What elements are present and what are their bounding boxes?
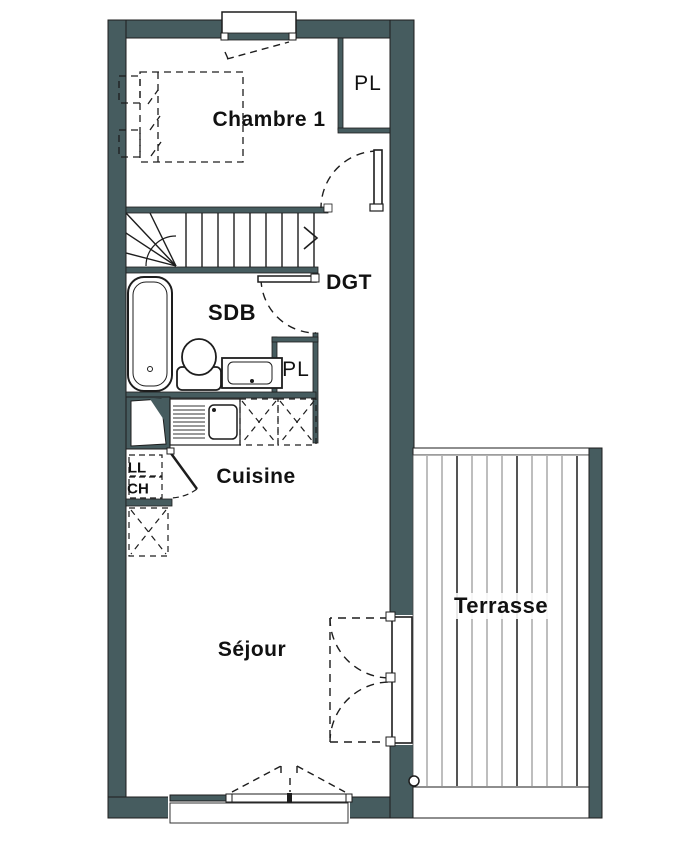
wall-dgt-lower <box>313 333 318 443</box>
stairs <box>126 213 317 267</box>
window-swing-dashes <box>225 42 289 61</box>
appliance-spaces <box>240 399 316 445</box>
label-closet-bath: PL <box>282 358 310 382</box>
stairs-direction-arrow <box>304 227 317 249</box>
floor-plan: Chambre 1 PL DGT SDB PL Cuisine LL CH Sé… <box>0 0 687 841</box>
terrace-top-edge <box>413 448 591 455</box>
window-fixed-pane <box>170 795 228 801</box>
label-chambre1: Chambre 1 <box>212 108 325 132</box>
french-door-swing <box>330 618 390 742</box>
bathtub <box>128 277 172 391</box>
kitchen-fixtures <box>126 397 316 449</box>
wall-chambre-stairs <box>126 207 328 213</box>
llch-door-leaf <box>170 452 197 489</box>
floor-plan-drawing <box>0 0 687 841</box>
french-door-terrace <box>330 612 412 746</box>
label-heater: CH <box>127 481 149 498</box>
label-closet-top: PL <box>354 72 382 96</box>
wall-stairs-sdb <box>126 267 318 273</box>
label-washer: LL <box>128 460 146 477</box>
door-jamb-chambre <box>324 204 332 212</box>
wall-pl-top-horizontal <box>338 128 390 133</box>
door-sdb <box>258 274 319 333</box>
window-sill-band <box>170 803 348 823</box>
llch-door-arc <box>170 489 197 498</box>
toilet <box>177 339 221 390</box>
stairs-winders <box>126 213 176 266</box>
wall-left <box>108 20 126 818</box>
window-chambre <box>221 12 296 61</box>
washbasin <box>222 358 282 388</box>
terrace-wall-right <box>589 448 602 818</box>
terrace-structure <box>409 448 602 818</box>
wall-llch-bottom <box>126 499 172 506</box>
terrace-band-bottom <box>413 787 589 818</box>
label-kitchen: Cuisine <box>216 465 295 489</box>
kitchen-tap <box>212 408 216 412</box>
door-chambre <box>321 150 383 211</box>
window-swing-dashes-sejour <box>232 766 345 792</box>
terrace-post <box>409 776 419 786</box>
kitchen-corner-unit <box>126 397 170 449</box>
llch-door-jamb <box>167 448 174 454</box>
wall-pl-top-vertical <box>338 38 343 130</box>
bathroom-fixtures <box>128 277 282 391</box>
storage-space <box>129 508 168 556</box>
label-bathroom: SDB <box>208 300 256 326</box>
label-living: Séjour <box>218 638 286 662</box>
label-hallway: DGT <box>326 271 372 295</box>
wall-pl-sdb-top <box>272 337 318 342</box>
window-sejour <box>170 766 352 823</box>
label-terrace: Terrasse <box>450 593 552 619</box>
kitchen-counter <box>170 399 240 445</box>
